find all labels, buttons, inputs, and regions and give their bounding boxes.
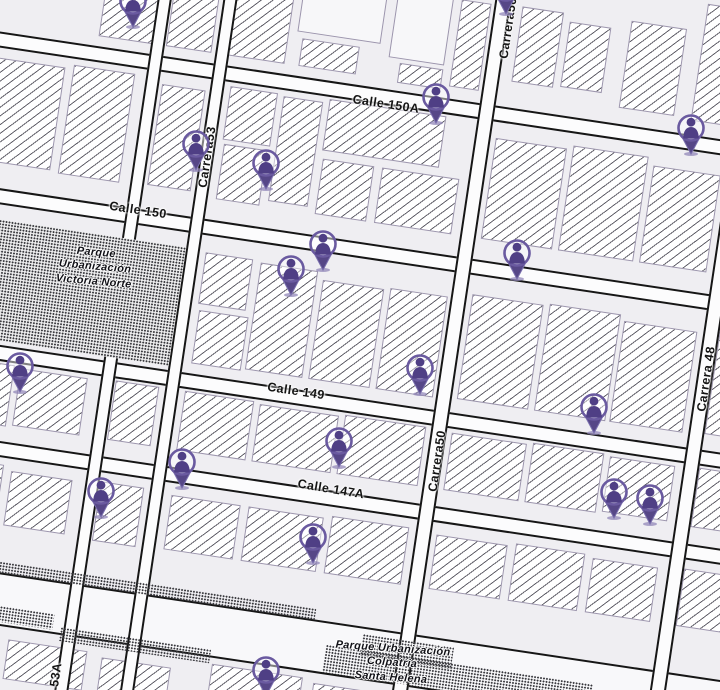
building	[691, 4, 720, 126]
person-marker[interactable]	[85, 477, 117, 519]
building	[0, 57, 66, 170]
person-head	[335, 431, 344, 440]
person-head	[610, 482, 619, 491]
person-head	[309, 527, 318, 536]
person-head	[432, 87, 441, 96]
person-head	[178, 452, 187, 461]
building	[389, 0, 455, 65]
person-marker[interactable]	[501, 239, 533, 281]
building	[457, 294, 544, 409]
building	[428, 535, 507, 600]
building	[374, 167, 459, 234]
person-head	[16, 356, 25, 365]
marker-pin-tail	[498, 0, 514, 14]
person-marker[interactable]	[404, 354, 436, 396]
building	[3, 471, 72, 535]
person-marker[interactable]	[4, 352, 36, 394]
person-marker[interactable]	[180, 130, 212, 172]
person-marker[interactable]	[117, 0, 149, 29]
person-head	[192, 134, 201, 143]
person-head	[687, 118, 696, 127]
person-marker[interactable]	[420, 83, 452, 125]
map-viewport[interactable]: Calle 150ACalle 150Calle 149Calle 147ACa…	[0, 0, 720, 690]
person-marker[interactable]	[250, 149, 282, 191]
building	[223, 86, 278, 147]
person-head	[287, 259, 296, 268]
building	[619, 21, 687, 116]
person-head	[646, 488, 655, 497]
person-head	[319, 234, 328, 243]
building	[324, 516, 410, 585]
person-head	[262, 660, 271, 669]
person-marker[interactable]	[675, 114, 707, 156]
person-marker[interactable]	[297, 523, 329, 565]
marker-ring	[494, 0, 519, 1]
person-marker[interactable]	[250, 656, 282, 690]
building	[166, 0, 224, 53]
building	[511, 6, 564, 87]
building	[0, 454, 4, 524]
building	[609, 321, 697, 433]
building	[307, 683, 374, 690]
building	[443, 433, 527, 502]
building	[481, 138, 567, 250]
building	[58, 65, 136, 183]
building	[163, 495, 240, 560]
person-head	[416, 358, 425, 367]
person-marker[interactable]	[307, 230, 339, 272]
person-head	[513, 243, 522, 252]
building	[191, 310, 248, 371]
building	[524, 443, 604, 513]
building	[297, 0, 390, 44]
building	[585, 558, 658, 622]
person-head	[262, 153, 271, 162]
building	[560, 22, 611, 93]
person-marker[interactable]	[275, 255, 307, 297]
building	[315, 159, 375, 222]
person-marker[interactable]	[578, 393, 610, 435]
person-marker[interactable]	[634, 484, 666, 526]
building	[107, 380, 159, 446]
building	[508, 543, 586, 611]
person-head	[590, 397, 599, 406]
building	[198, 252, 253, 311]
building	[298, 38, 360, 74]
building	[639, 166, 720, 273]
person-marker[interactable]	[166, 448, 198, 490]
person-head	[97, 481, 106, 490]
building	[558, 145, 649, 261]
map-canvas	[0, 0, 720, 690]
building	[308, 280, 384, 388]
person-marker[interactable]	[323, 427, 355, 469]
person-marker[interactable]	[598, 478, 630, 520]
person-marker[interactable]	[490, 0, 522, 16]
